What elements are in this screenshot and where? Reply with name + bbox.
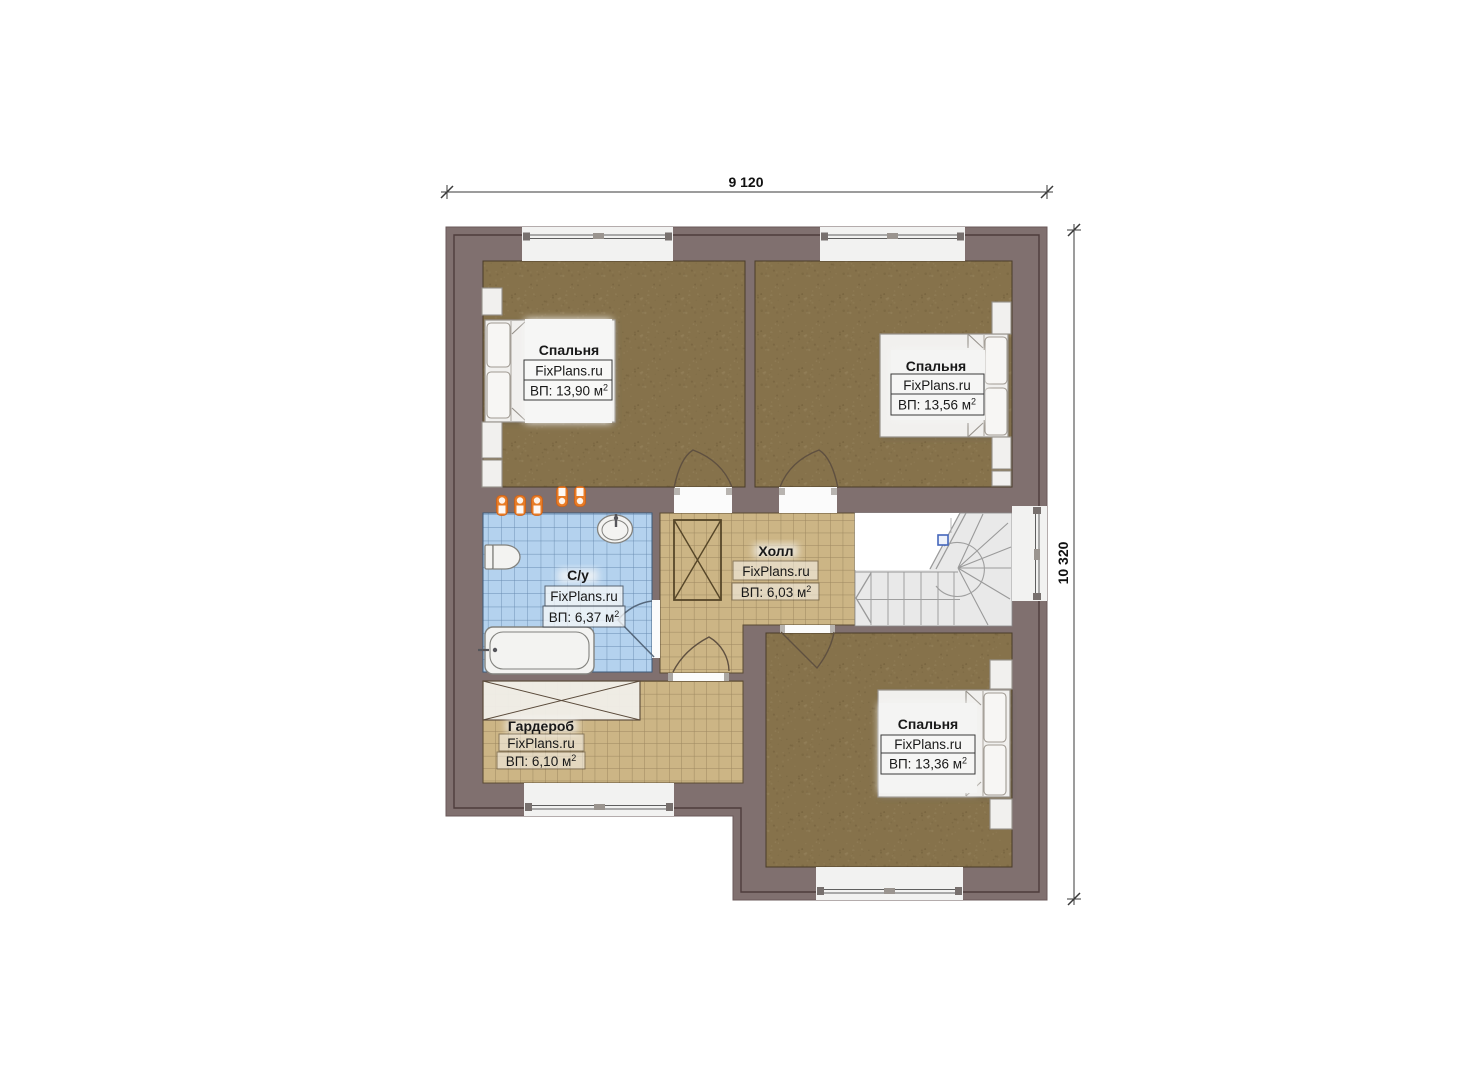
svg-text:Спальня: Спальня [906, 358, 966, 374]
svg-text:FixPlans.ru: FixPlans.ru [507, 736, 575, 751]
svg-text:ВП: 13,36 м2: ВП: 13,36 м2 [889, 756, 967, 772]
svg-text:ВП: 6,03 м2: ВП: 6,03 м2 [741, 584, 812, 600]
svg-text:ВП: 6,10 м2: ВП: 6,10 м2 [506, 753, 577, 769]
svg-text:FixPlans.ru: FixPlans.ru [550, 589, 618, 604]
svg-text:FixPlans.ru: FixPlans.ru [535, 364, 603, 379]
svg-text:С/у: С/у [567, 567, 589, 583]
svg-text:ВП: 13,56 м2: ВП: 13,56 м2 [898, 397, 976, 413]
svg-text:FixPlans.ru: FixPlans.ru [742, 564, 810, 579]
svg-text:10 320: 10 320 [1055, 541, 1071, 584]
svg-text:ВП: 6,37 м2: ВП: 6,37 м2 [549, 609, 620, 625]
svg-text:ВП: 13,90 м2: ВП: 13,90 м2 [530, 383, 608, 399]
svg-text:Спальня: Спальня [539, 342, 599, 358]
svg-text:Холл: Холл [758, 543, 793, 559]
svg-text:FixPlans.ru: FixPlans.ru [903, 378, 971, 393]
svg-text:Спальня: Спальня [898, 716, 958, 732]
svg-text:9 120: 9 120 [728, 174, 763, 190]
svg-text:Гардероб: Гардероб [508, 718, 575, 734]
svg-text:FixPlans.ru: FixPlans.ru [894, 737, 962, 752]
